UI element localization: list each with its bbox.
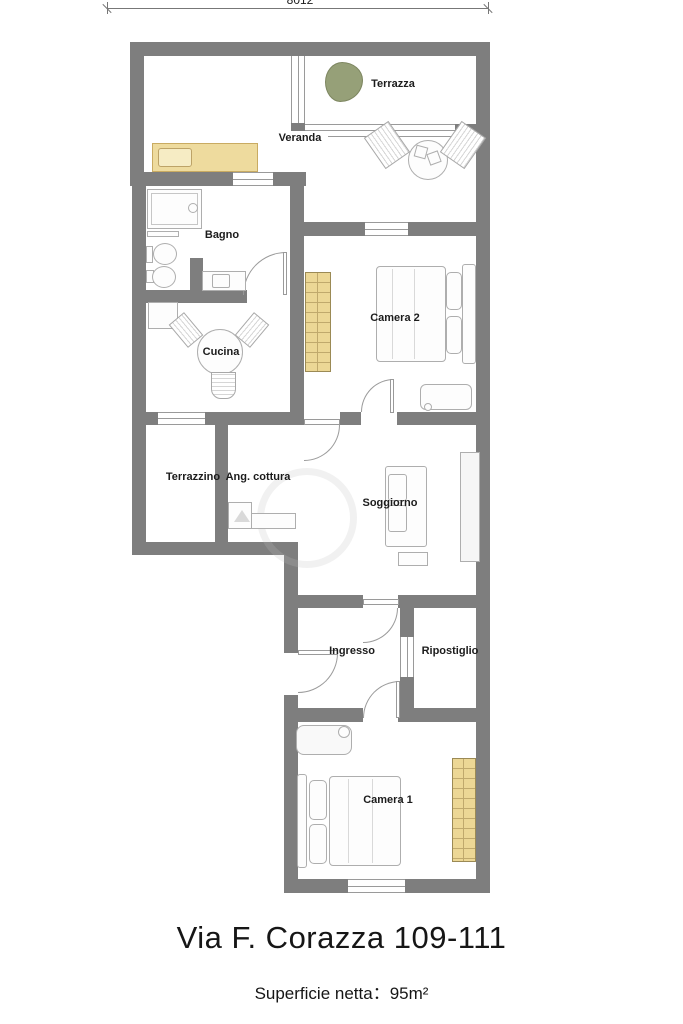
room-label-terrazza: Terrazza xyxy=(363,77,423,91)
wall xyxy=(408,222,490,236)
door-leaf xyxy=(304,419,340,425)
wall xyxy=(130,172,233,186)
shower-faucet xyxy=(188,203,198,213)
sideboard xyxy=(460,452,480,562)
door-arc xyxy=(363,608,398,643)
door-leaf xyxy=(283,252,287,295)
wall xyxy=(398,595,490,608)
sink-drainer xyxy=(234,510,250,522)
room-label-ingresso: Ingresso xyxy=(312,644,392,658)
bed-headboard xyxy=(462,264,476,364)
bed-headboard xyxy=(297,774,307,868)
door-arc xyxy=(304,425,340,461)
room-label-soggiorno: Soggiorno xyxy=(350,496,430,510)
door-arc xyxy=(243,252,286,295)
room-label-veranda: Veranda xyxy=(272,131,328,145)
wall xyxy=(284,695,298,893)
entrance-door-arc xyxy=(298,653,338,693)
wall xyxy=(132,186,146,555)
plant-icon xyxy=(325,62,363,102)
pillow xyxy=(446,272,462,310)
door-leaf xyxy=(396,681,400,718)
kitchen-counter xyxy=(251,513,296,529)
wardrobe xyxy=(452,758,476,862)
bed-fold xyxy=(348,779,349,863)
window xyxy=(158,412,205,425)
wall xyxy=(400,608,414,637)
window xyxy=(291,56,305,123)
dimension-line xyxy=(107,8,488,9)
room-label-camera2: Camera 2 xyxy=(360,311,430,325)
wall xyxy=(130,42,490,56)
wall xyxy=(405,879,490,893)
address-title: Via F. Corazza 109-111 xyxy=(0,920,683,956)
room-label-cucina: Cucina xyxy=(191,345,251,359)
door-leaf xyxy=(390,379,394,413)
wall xyxy=(397,412,490,425)
pillow xyxy=(446,316,462,354)
wardrobe xyxy=(305,272,331,372)
door-leaf xyxy=(363,599,399,605)
room-label-ripostiglio: Ripostiglio xyxy=(408,644,492,658)
floor-plan: 8012 xyxy=(0,0,683,1024)
bench-wheel xyxy=(338,726,350,738)
room-label-ang-cottura: Ang. cottura xyxy=(218,470,298,484)
chair xyxy=(211,372,236,399)
wall xyxy=(205,412,304,425)
room-label-camera1: Camera 1 xyxy=(350,793,426,807)
window xyxy=(365,222,408,236)
wall xyxy=(132,412,158,425)
dimension-value: 8012 xyxy=(270,0,330,7)
pillow xyxy=(309,824,327,864)
room-label-bagno: Bagno xyxy=(196,228,248,242)
veranda-sink xyxy=(158,148,192,167)
sink xyxy=(212,274,230,288)
door-arc xyxy=(363,681,400,718)
double-bed xyxy=(329,776,401,866)
toilet-bowl xyxy=(153,243,177,265)
bench-wheel xyxy=(424,403,432,411)
window xyxy=(348,879,405,893)
towel-bar xyxy=(147,231,179,237)
wall xyxy=(130,42,144,186)
wall xyxy=(340,412,361,425)
net-area-subtitle: Superficie netta：95m² xyxy=(0,979,683,1004)
wall xyxy=(298,708,363,722)
pillow xyxy=(309,780,327,820)
toilet xyxy=(146,246,153,263)
window xyxy=(233,172,273,186)
coffee-table xyxy=(398,552,428,566)
wall xyxy=(398,708,490,722)
wall xyxy=(290,172,304,425)
bed-fold xyxy=(372,779,373,863)
wall xyxy=(284,879,348,893)
bidet-bowl xyxy=(152,266,176,288)
wall xyxy=(298,595,363,608)
